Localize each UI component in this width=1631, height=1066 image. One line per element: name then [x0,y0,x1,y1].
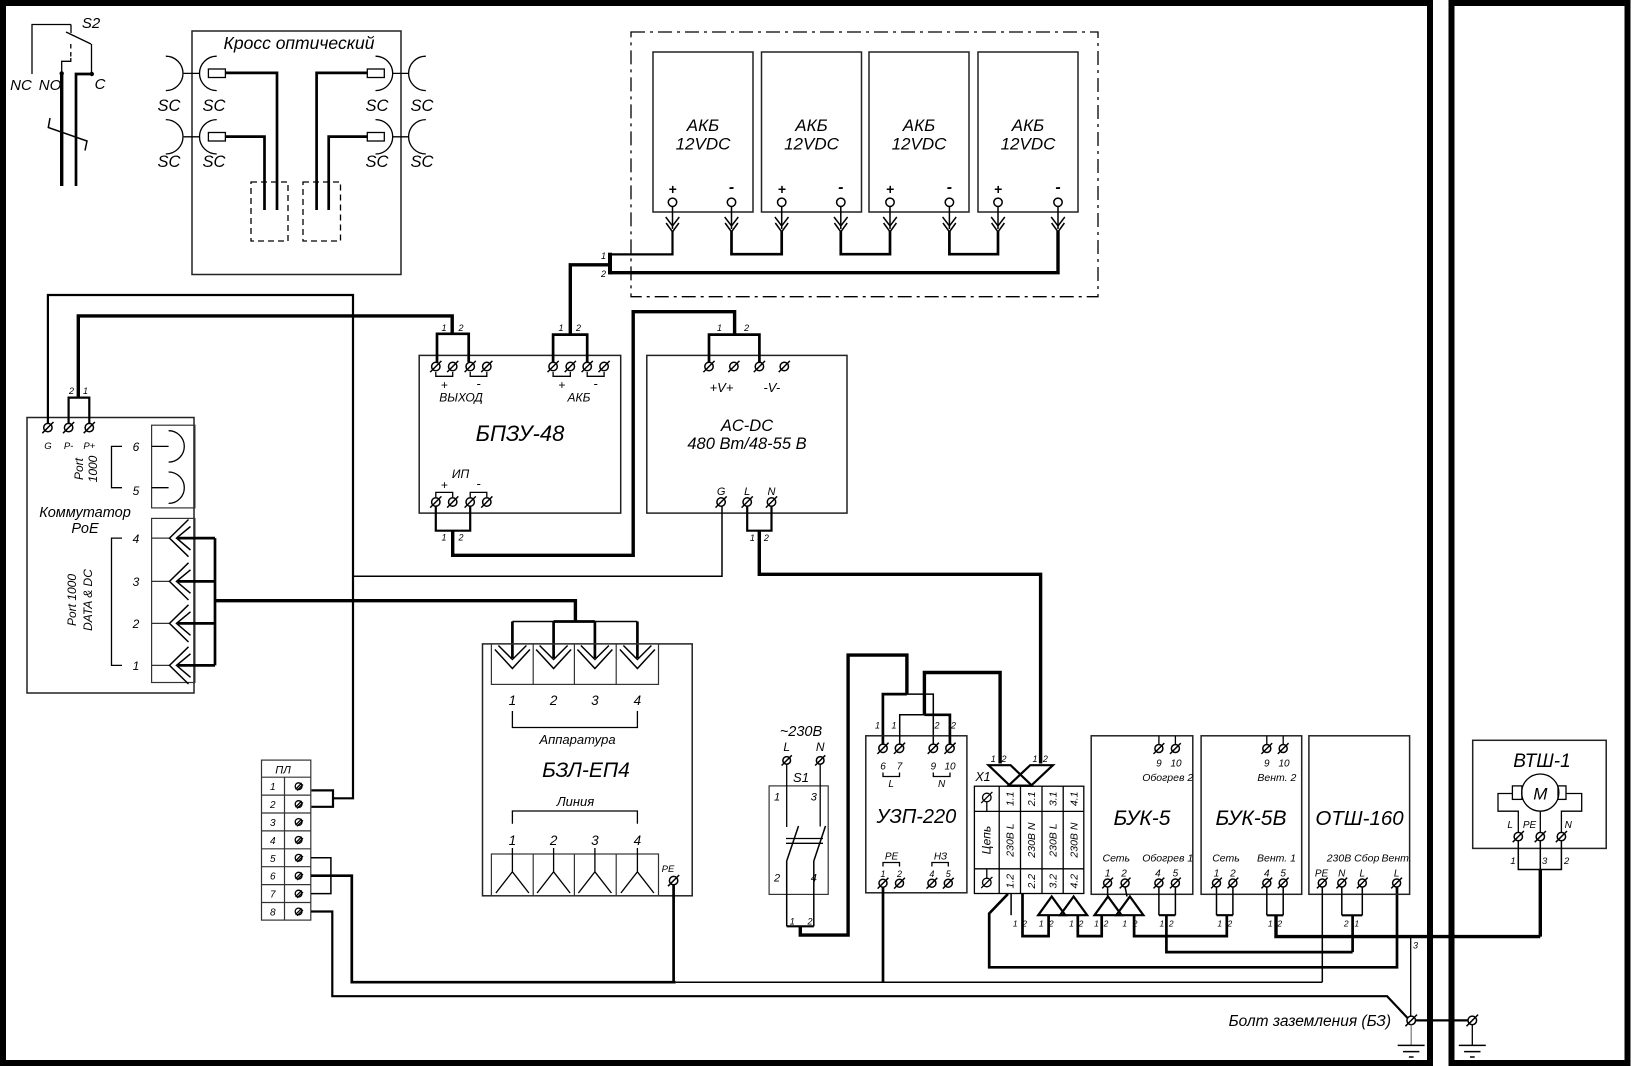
svg-text:Сеть: Сеть [1212,853,1240,865]
svg-text:230В N: 230В N [1068,822,1080,858]
svg-text:Цепь: Цепь [980,826,994,855]
svg-text:N: N [768,486,776,498]
svg-text:N: N [938,779,946,790]
svg-text:2: 2 [773,873,780,885]
svg-text:2: 2 [1042,754,1048,764]
svg-text:2: 2 [1048,919,1054,929]
svg-text:-: - [476,376,481,391]
svg-text:+: + [886,181,894,197]
svg-text:12VDC: 12VDC [676,135,732,154]
svg-text:2: 2 [1343,919,1349,929]
svg-text:+: + [994,181,1002,197]
svg-text:АКБ: АКБ [794,116,827,135]
svg-text:1: 1 [441,323,446,333]
svg-text:S1: S1 [793,770,809,785]
svg-text:1: 1 [750,533,755,543]
svg-text:Болт заземления (БЗ): Болт заземления (БЗ) [1229,1013,1391,1030]
svg-text:2: 2 [1000,754,1006,764]
svg-text:4.2: 4.2 [1068,874,1080,889]
svg-text:1: 1 [1510,856,1515,867]
svg-text:10: 10 [1170,759,1182,770]
svg-text:БПЗУ-48: БПЗУ-48 [476,421,565,446]
svg-text:ПЛ: ПЛ [275,765,291,777]
svg-text:1: 1 [1105,869,1111,880]
svg-text:2: 2 [1168,919,1174,929]
svg-text:Port: Port [72,457,86,480]
svg-text:8: 8 [270,908,276,919]
svg-text:2: 2 [132,617,140,631]
svg-text:2: 2 [743,323,749,333]
svg-text:2: 2 [1229,869,1236,880]
svg-text:2: 2 [1103,919,1109,929]
svg-text:1: 1 [875,721,880,731]
svg-text:АКБ: АКБ [902,116,935,135]
svg-text:1: 1 [558,323,563,333]
svg-text:SC: SC [366,153,389,171]
svg-text:-: - [1055,179,1060,196]
svg-text:SC: SC [158,153,181,171]
svg-text:НЗ: НЗ [934,852,947,863]
svg-text:Обогрев 2: Обогрев 2 [1142,772,1193,784]
svg-text:4: 4 [929,869,934,879]
svg-text:Вент.: Вент. [1382,853,1412,865]
svg-text:4: 4 [1264,869,1270,880]
svg-text:2: 2 [549,833,558,848]
svg-text:АКБ: АКБ [1011,116,1044,135]
svg-text:4: 4 [634,693,642,708]
svg-text:1: 1 [774,792,780,804]
svg-text:230В N: 230В N [1026,822,1038,858]
svg-text:2: 2 [1563,856,1570,867]
svg-text:230В L: 230В L [1047,823,1059,857]
svg-text:-: - [947,179,952,196]
svg-text:-: - [476,476,481,491]
svg-text:N: N [1338,869,1346,880]
svg-text:7: 7 [897,762,903,773]
svg-text:3: 3 [1542,856,1548,867]
svg-text:1: 1 [1214,869,1220,880]
svg-text:Аппаратура: Аппаратура [538,732,615,747]
svg-text:2.2: 2.2 [1026,874,1038,890]
svg-text:3.1: 3.1 [1047,791,1059,806]
svg-text:SC: SC [203,153,226,171]
svg-text:1.2: 1.2 [1005,874,1017,889]
svg-text:230В L: 230В L [1005,823,1017,857]
svg-text:ВЫХОД: ВЫХОД [439,391,483,405]
svg-text:Сеть: Сеть [1103,853,1131,865]
svg-text:G: G [44,441,51,452]
svg-text:9: 9 [1264,759,1270,770]
svg-text:2: 2 [933,721,939,731]
svg-text:SC: SC [158,97,181,115]
svg-text:N: N [816,740,825,754]
svg-text:PE: PE [1523,820,1537,831]
svg-text:PE: PE [662,864,675,875]
svg-text:10: 10 [944,762,956,773]
svg-text:1: 1 [717,323,722,333]
svg-text:БУК-5: БУК-5 [1114,807,1171,830]
svg-text:БУК-5В: БУК-5В [1216,807,1287,830]
svg-text:1: 1 [1268,919,1273,929]
svg-text:6: 6 [880,762,886,773]
svg-text:2: 2 [896,869,902,879]
svg-text:АКБ: АКБ [686,116,719,135]
svg-text:6: 6 [270,872,276,883]
svg-text:-: - [729,179,734,196]
svg-text:3: 3 [270,818,276,829]
svg-text:NO: NO [39,77,62,94]
svg-text:Вент. 1: Вент. 1 [1257,853,1296,865]
svg-text:L: L [1507,820,1513,831]
svg-text:L: L [783,740,790,754]
svg-text:-: - [593,376,598,391]
svg-text:1: 1 [601,251,606,261]
svg-text:12VDC: 12VDC [1001,135,1057,154]
svg-text:1: 1 [1069,919,1074,929]
svg-text:L: L [744,486,750,498]
svg-text:PE: PE [885,852,899,863]
svg-text:1000: 1000 [86,455,100,482]
svg-text:2: 2 [806,917,812,927]
svg-text:12VDC: 12VDC [892,135,948,154]
svg-text:+: + [441,478,448,492]
svg-text:БЗЛ-ЕП4: БЗЛ-ЕП4 [542,759,630,782]
svg-text:М: М [1533,785,1548,804]
svg-text:5: 5 [1280,869,1286,880]
svg-text:2.1: 2.1 [1026,791,1038,807]
svg-text:1.1: 1.1 [1005,791,1017,806]
svg-text:Port 1000: Port 1000 [65,574,79,626]
svg-text:2: 2 [763,533,769,543]
svg-text:5: 5 [270,854,276,865]
svg-text:2: 2 [457,323,463,333]
svg-text:Обогрев 1: Обогрев 1 [1142,853,1193,865]
svg-text:ОТШ-160: ОТШ-160 [1315,807,1404,830]
svg-text:1: 1 [1039,919,1044,929]
svg-text:2: 2 [575,323,581,333]
svg-text:Кросс оптический: Кросс оптический [224,33,375,53]
svg-text:7: 7 [270,890,276,901]
svg-text:1: 1 [1094,919,1099,929]
svg-text:480 Вт/48-55 В: 480 Вт/48-55 В [687,435,806,453]
svg-text:2: 2 [549,693,558,708]
svg-text:1: 1 [509,693,517,708]
svg-text:DATA & DC: DATA & DC [81,569,95,631]
svg-text:9: 9 [931,762,937,773]
svg-text:1: 1 [880,869,885,879]
svg-text:+: + [778,181,786,197]
svg-text:2: 2 [457,533,463,543]
svg-text:5: 5 [133,484,140,498]
svg-text:ВТШ-1: ВТШ-1 [1513,751,1570,772]
svg-text:NC: NC [10,77,32,94]
svg-text:2: 2 [1021,919,1027,929]
svg-text:3: 3 [591,693,599,708]
svg-text:1: 1 [1354,919,1359,929]
svg-text:1: 1 [1013,919,1018,929]
svg-text:+: + [558,378,565,392]
svg-text:1: 1 [133,659,140,673]
svg-text:AC-DC: AC-DC [720,417,773,435]
svg-text:C: C [95,76,106,93]
svg-text:1: 1 [1122,919,1127,929]
svg-text:SC: SC [411,97,434,115]
svg-text:Линия: Линия [556,794,595,809]
svg-text:1: 1 [509,833,517,848]
svg-text:1: 1 [1032,754,1037,764]
svg-text:3: 3 [1413,941,1418,951]
svg-text:1: 1 [891,721,896,731]
svg-text:1: 1 [991,754,996,764]
svg-text:SC: SC [411,153,434,171]
svg-text:4: 4 [133,532,140,546]
svg-text:+V+: +V+ [710,380,734,395]
svg-text:-V-: -V- [763,380,781,395]
svg-text:N: N [1565,820,1573,831]
svg-text:+: + [668,181,676,197]
svg-text:1: 1 [83,386,88,396]
svg-text:SC: SC [203,97,226,115]
svg-text:L: L [1360,869,1366,880]
svg-text:1: 1 [1217,919,1222,929]
svg-text:10: 10 [1278,759,1290,770]
svg-text:1: 1 [270,782,276,793]
svg-text:L: L [888,779,894,790]
svg-text:P+: P+ [83,441,95,452]
svg-text:SC: SC [366,97,389,115]
svg-text:2: 2 [1120,869,1127,880]
svg-text:9: 9 [1156,759,1162,770]
svg-text:X1: X1 [974,770,990,784]
svg-text:РоЕ: РоЕ [71,521,99,537]
svg-text:АКБ: АКБ [567,391,591,405]
svg-text:~230В: ~230В [780,724,823,740]
svg-text:4.1: 4.1 [1068,791,1080,806]
svg-text:2: 2 [68,386,74,396]
svg-text:230В Сбор: 230В Сбор [1326,853,1380,865]
svg-text:3: 3 [811,792,818,804]
svg-text:5: 5 [1173,869,1179,880]
svg-text:ИП: ИП [452,467,470,481]
svg-text:3: 3 [133,575,140,589]
svg-text:-: - [838,179,843,196]
svg-text:4: 4 [1155,869,1161,880]
svg-text:P-: P- [64,441,74,452]
svg-text:Коммутатор: Коммутатор [39,505,131,521]
svg-text:6: 6 [133,440,140,454]
svg-text:3: 3 [591,833,599,848]
svg-text:G: G [717,486,726,498]
svg-text:2: 2 [1078,919,1084,929]
svg-text:4: 4 [634,833,642,848]
svg-text:1: 1 [790,917,795,927]
svg-text:S2: S2 [82,15,101,32]
svg-text:4: 4 [270,836,276,847]
svg-text:УЗП-220: УЗП-220 [875,806,956,828]
svg-text:3.2: 3.2 [1047,874,1059,889]
svg-text:Вент. 2: Вент. 2 [1257,772,1296,784]
svg-text:2: 2 [269,800,276,811]
svg-text:12VDC: 12VDC [784,135,840,154]
svg-text:1: 1 [441,533,446,543]
svg-text:1: 1 [1160,919,1165,929]
svg-text:L: L [1394,869,1400,880]
svg-text:2: 2 [600,269,606,279]
svg-text:2: 2 [1227,919,1233,929]
